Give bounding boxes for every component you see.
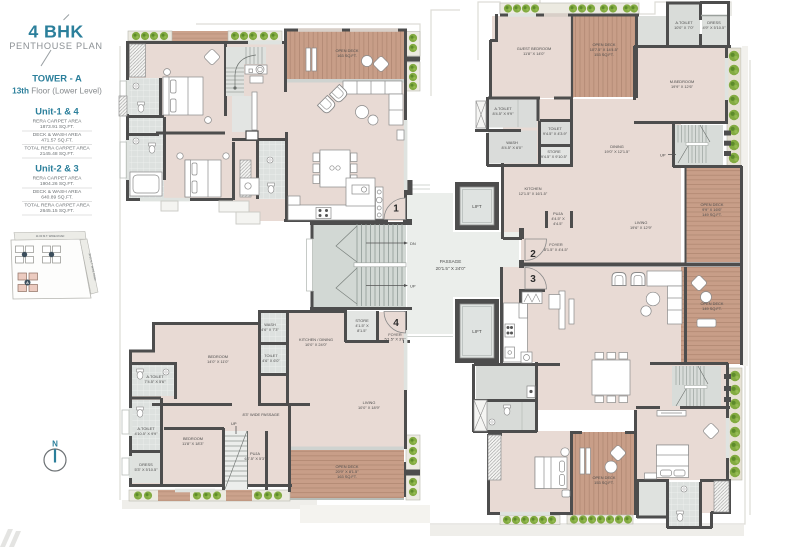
- svg-text:5'1.5" X 3'0": 5'1.5" X 3'0": [385, 337, 407, 342]
- svg-text:9'4.5" X 9'10.5": 9'4.5" X 9'10.5": [541, 154, 568, 159]
- svg-text:8'4.5" X 9'9": 8'4.5" X 9'9": [493, 111, 515, 116]
- svg-text:4 BHK: 4 BHK: [28, 22, 83, 42]
- svg-text:RERA CARPET AREA: RERA CARPET AREA: [33, 176, 83, 182]
- svg-text:PENTHOUSE PLAN: PENTHOUSE PLAN: [9, 41, 103, 51]
- svg-text:LIFT: LIFT: [472, 329, 482, 334]
- svg-text:TOTAL RERA CARPET AREA: TOTAL RERA CARPET AREA: [24, 146, 90, 152]
- svg-text:RERA CARPET AREA: RERA CARPET AREA: [33, 119, 83, 125]
- svg-text:UP: UP: [660, 153, 666, 158]
- svg-text:640.89 SQ.FT.: 640.89 SQ.FT.: [41, 195, 73, 201]
- svg-text:4'4.5": 4'4.5": [553, 221, 563, 226]
- svg-text:1904.26 SQ.FT.: 1904.26 SQ.FT.: [40, 181, 74, 187]
- svg-text:149 SQ.FT.: 149 SQ.FT.: [702, 306, 722, 311]
- svg-text:3: 3: [530, 274, 536, 285]
- svg-text:149 SQ.FT.: 149 SQ.FT.: [702, 212, 722, 217]
- svg-text:12'1.5" X 16'1.5": 12'1.5" X 16'1.5": [519, 191, 548, 196]
- svg-text:4'9" X 5'10.5": 4'9" X 5'10.5": [702, 25, 726, 30]
- svg-text:163 SQ.FT.: 163 SQ.FT.: [337, 474, 357, 479]
- svg-text:19'0" X 12'1.5": 19'0" X 12'1.5": [604, 149, 630, 154]
- svg-text:1873.91 SQ.FT.: 1873.91 SQ.FT.: [40, 124, 74, 130]
- svg-text:153 SQ.FT.: 153 SQ.FT.: [594, 52, 614, 57]
- svg-text:DN: DN: [410, 241, 416, 246]
- svg-text:2: 2: [530, 249, 536, 260]
- svg-text:PASSAGE: PASSAGE: [440, 259, 462, 264]
- svg-text:9'4.5" X 4'3.9": 9'4.5" X 4'3.9": [543, 131, 568, 136]
- svg-text:8'3" WIDE PASSAGE: 8'3" WIDE PASSAGE: [242, 412, 279, 417]
- svg-text:19'9" X 12'6": 19'9" X 12'6": [671, 84, 694, 89]
- svg-text:4'6" X 7'3": 4'6" X 7'3": [261, 327, 279, 332]
- svg-text:Unit-2 & 3: Unit-2 & 3: [35, 164, 78, 174]
- svg-text:10'0" X 18'9": 10'0" X 18'9": [358, 405, 381, 410]
- svg-text:11'8" X 14'0": 11'8" X 14'0": [523, 51, 545, 56]
- svg-text:A: A: [26, 281, 29, 285]
- svg-text:8'4.5" X 6'0": 8'4.5" X 6'0": [502, 145, 524, 150]
- svg-text:4: 4: [393, 318, 399, 329]
- svg-text:471.57 SQ.FT.: 471.57 SQ.FT.: [41, 138, 73, 144]
- svg-text:6'7.5" X 5'3": 6'7.5" X 5'3": [245, 456, 267, 461]
- svg-text:N: N: [52, 440, 58, 449]
- svg-text:1: 1: [393, 204, 399, 215]
- svg-text:19'6" X 12'9": 19'6" X 12'9": [630, 225, 653, 230]
- svg-text:2645.15 SQ.FT.: 2645.15 SQ.FT.: [40, 208, 74, 214]
- svg-text:8'1.5": 8'1.5": [357, 328, 367, 333]
- svg-text:5'3" X 5'10.5": 5'3" X 5'10.5": [134, 467, 158, 472]
- svg-text:4'10.5" X 9'9": 4'10.5" X 9'9": [134, 431, 158, 436]
- svg-text:UP: UP: [410, 284, 416, 289]
- svg-text:11:00 M.T. WIDE ROAD: 11:00 M.T. WIDE ROAD: [36, 234, 65, 238]
- svg-text:163 SQ.FT.: 163 SQ.FT.: [337, 53, 357, 58]
- svg-text:7'4.5" X 5'6": 7'4.5" X 5'6": [145, 379, 167, 384]
- svg-text:2145.48 SQ.FT.: 2145.48 SQ.FT.: [40, 151, 74, 157]
- svg-text:DECK & WASH AREA: DECK & WASH AREA: [33, 132, 82, 138]
- svg-text:DECK & WASH AREA: DECK & WASH AREA: [33, 189, 82, 195]
- svg-text:TOTAL RERA CARPET AREA: TOTAL RERA CARPET AREA: [24, 203, 90, 209]
- svg-text:20'1.5" X 24'0": 20'1.5" X 24'0": [436, 266, 466, 271]
- svg-text:Unit-1 & 4: Unit-1 & 4: [35, 107, 79, 117]
- svg-text:153 SQ.FT.: 153 SQ.FT.: [594, 480, 614, 485]
- svg-text:4'6" X 6'0": 4'6" X 6'0": [262, 358, 280, 363]
- svg-text:TOWER - A: TOWER - A: [32, 73, 82, 84]
- svg-text:10'0" X 7'0": 10'0" X 7'0": [674, 25, 694, 30]
- svg-text:13th Floor (Lower Level): 13th Floor (Lower Level): [12, 87, 102, 96]
- svg-text:14'0" X 11'0": 14'0" X 11'0": [207, 359, 229, 364]
- svg-text:UP: UP: [231, 421, 237, 426]
- svg-text:LIFT: LIFT: [472, 204, 482, 209]
- svg-text:10'0" X 24'0": 10'0" X 24'0": [305, 342, 328, 347]
- svg-text:8'1.5" X 4'4.5": 8'1.5" X 4'4.5": [544, 247, 569, 252]
- svg-text:11'8" X 18'3": 11'8" X 18'3": [182, 441, 204, 446]
